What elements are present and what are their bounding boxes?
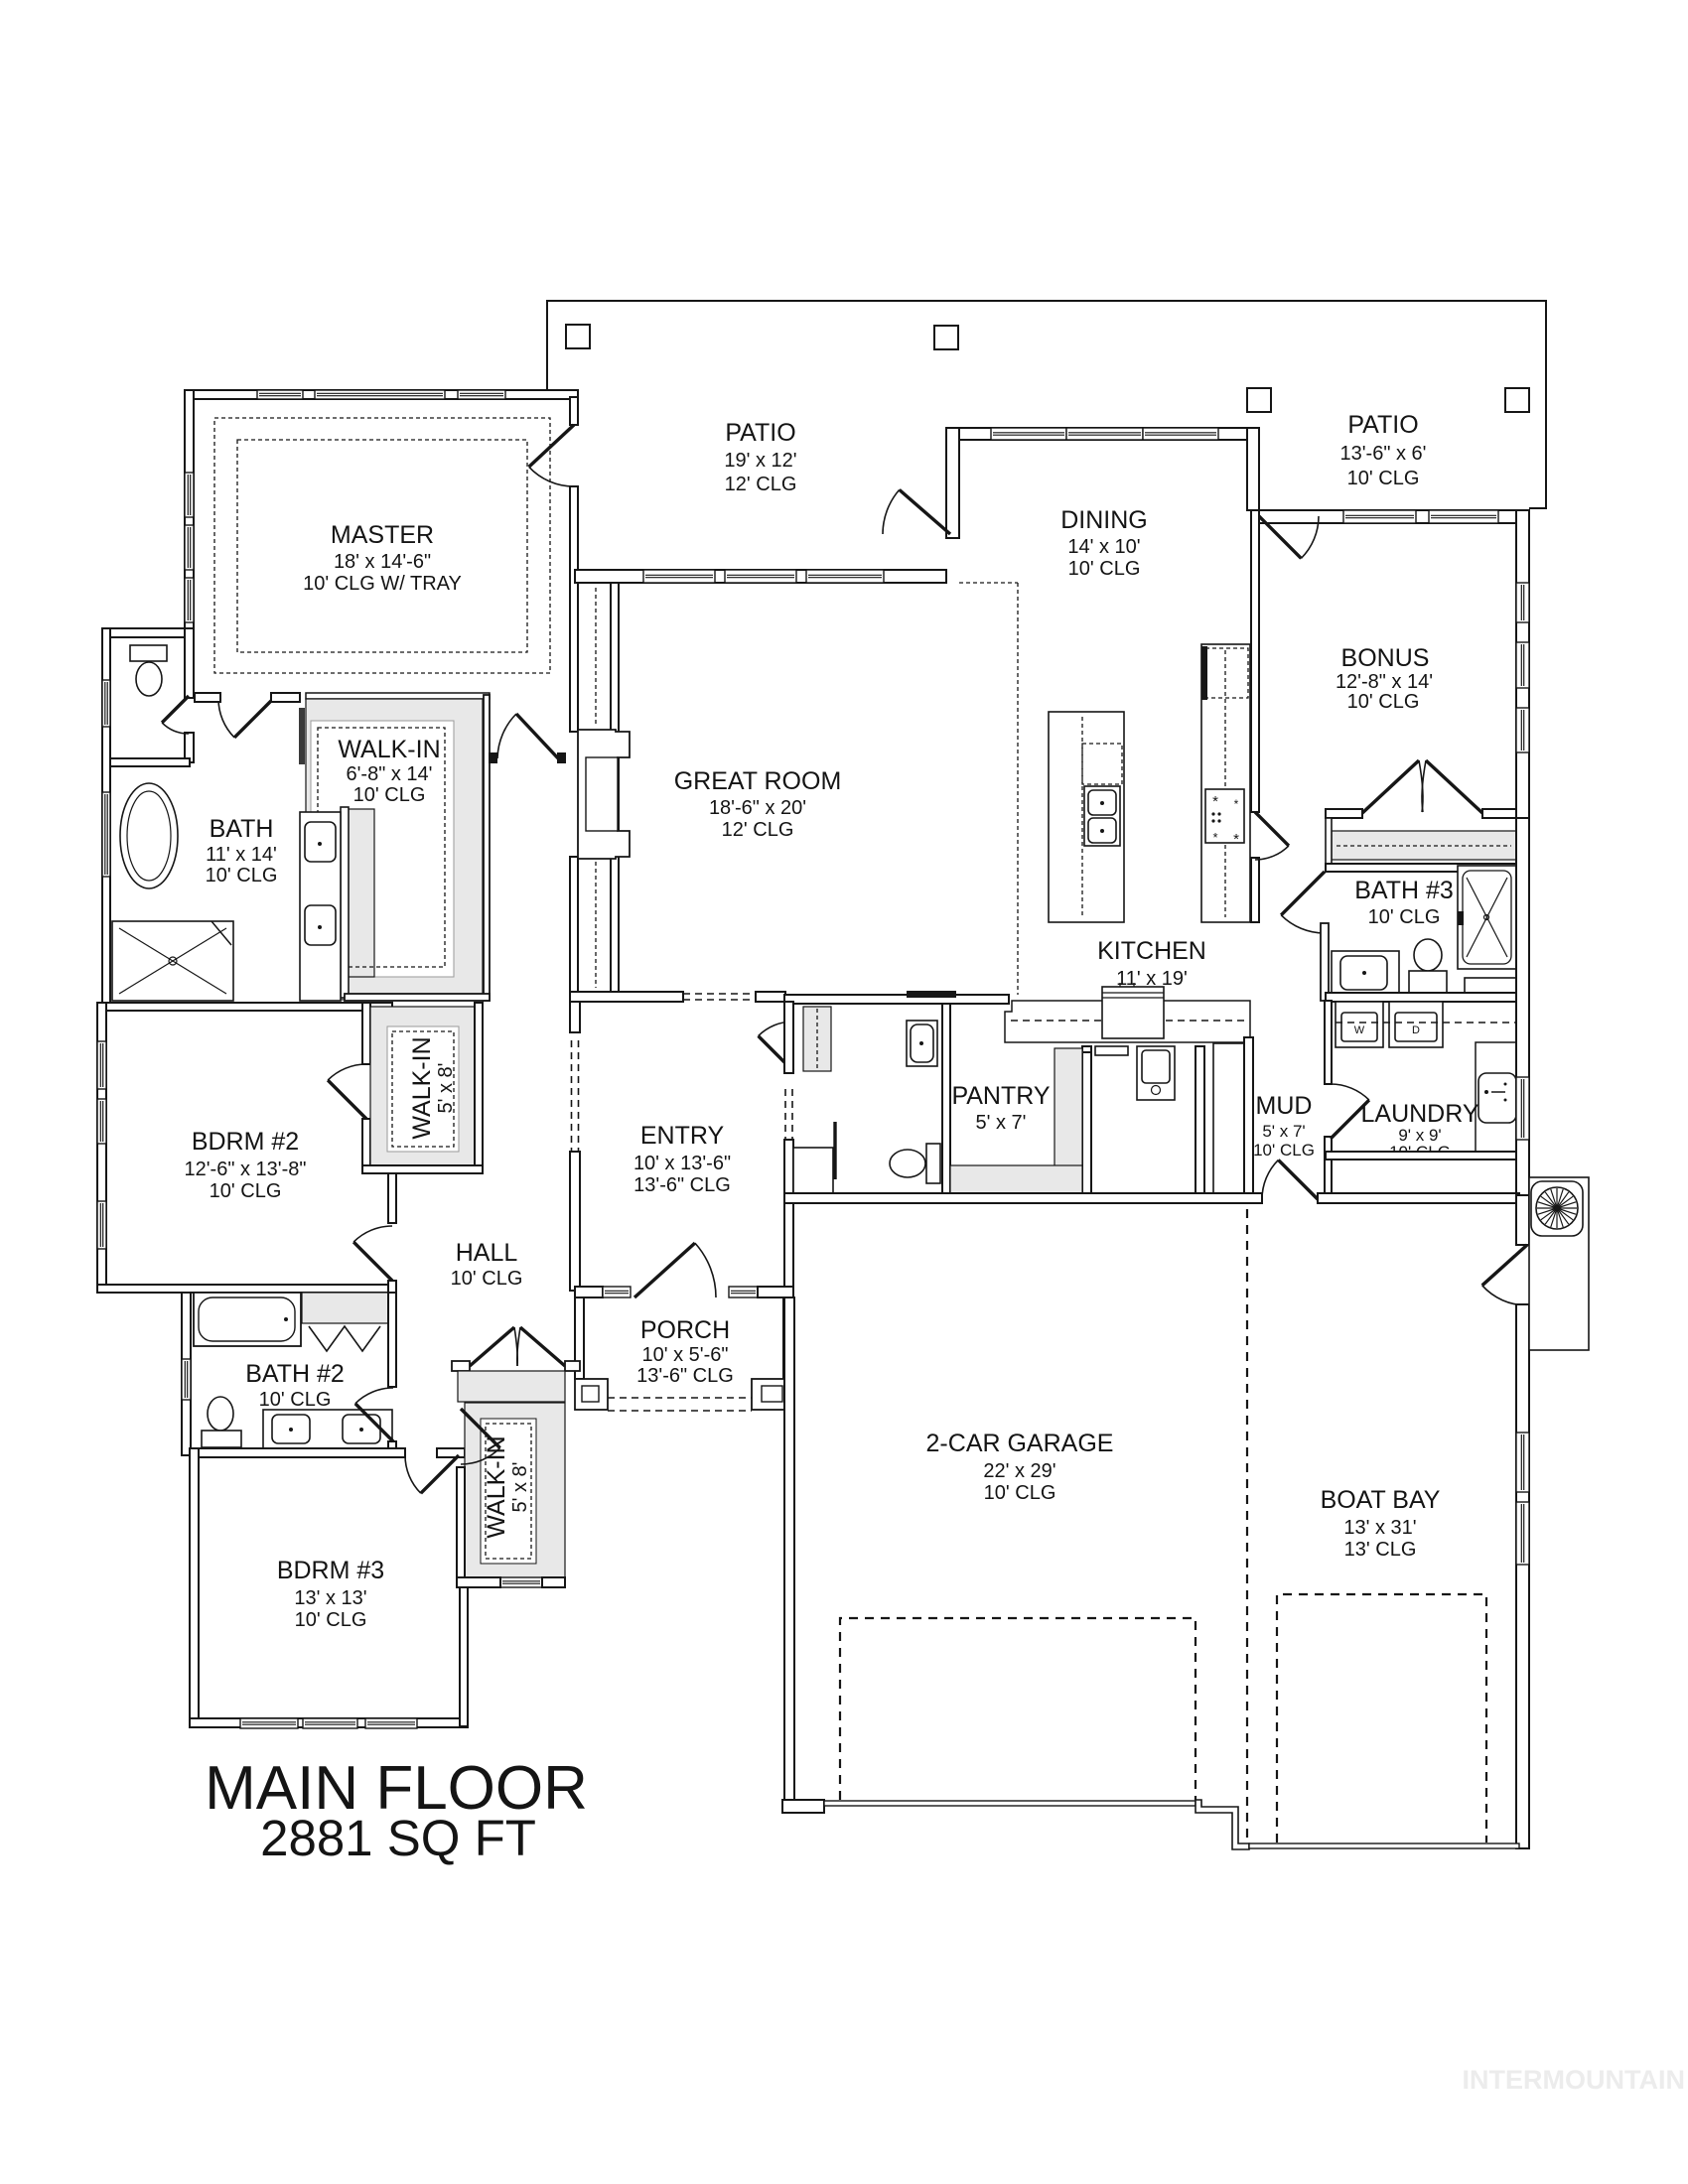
svg-text:BATH #2: BATH #2 <box>245 1360 345 1388</box>
svg-text:PANTRY: PANTRY <box>951 1082 1050 1110</box>
svg-text:*: * <box>1234 797 1239 811</box>
svg-text:22' x 29': 22' x 29' <box>983 1460 1055 1482</box>
svg-text:BDRM #3: BDRM #3 <box>277 1557 384 1584</box>
svg-text:10' CLG: 10' CLG <box>984 1482 1056 1504</box>
svg-text:W: W <box>1354 1024 1365 1036</box>
svg-text:14' x 10': 14' x 10' <box>1067 536 1140 558</box>
svg-text:6'-8" x 14': 6'-8" x 14' <box>346 763 432 785</box>
svg-text:BOAT BAY: BOAT BAY <box>1321 1486 1441 1514</box>
svg-text:BDRM #2: BDRM #2 <box>192 1128 299 1156</box>
svg-text:10' CLG: 10' CLG <box>1068 558 1141 580</box>
svg-text:10' CLG: 10' CLG <box>451 1268 523 1290</box>
svg-text:5' x 8': 5' x 8' <box>509 1462 531 1513</box>
svg-text:10' CLG: 10' CLG <box>353 784 426 806</box>
svg-text:18'-6" x 20': 18'-6" x 20' <box>709 797 806 819</box>
svg-text:KITCHEN: KITCHEN <box>1097 937 1206 965</box>
svg-text:13'-6" CLG: 13'-6" CLG <box>633 1174 731 1196</box>
svg-text:BATH #3: BATH #3 <box>1354 877 1454 904</box>
svg-text:19' x 12': 19' x 12' <box>724 450 796 472</box>
svg-text:5' x 7': 5' x 7' <box>1262 1122 1305 1141</box>
svg-text:10' CLG: 10' CLG <box>295 1609 367 1631</box>
svg-text:13' x 13': 13' x 13' <box>294 1587 366 1609</box>
svg-text:WALK-IN: WALK-IN <box>408 1036 436 1139</box>
svg-text:WALK-IN: WALK-IN <box>483 1435 510 1538</box>
svg-text:MASTER: MASTER <box>331 521 434 549</box>
svg-text:10' x 5'-6": 10' x 5'-6" <box>641 1344 728 1366</box>
svg-text:2-CAR GARAGE: 2-CAR GARAGE <box>926 1430 1114 1457</box>
svg-text:13'-6" x 6': 13'-6" x 6' <box>1339 443 1426 465</box>
svg-text:10' CLG: 10' CLG <box>206 865 278 887</box>
svg-text:10' CLG: 10' CLG <box>1347 468 1420 489</box>
svg-text:10' CLG: 10' CLG <box>1368 906 1441 928</box>
svg-text:12'-6" x 13'-8": 12'-6" x 13'-8" <box>184 1159 306 1180</box>
svg-text:PATIO: PATIO <box>1347 411 1418 439</box>
svg-text:HALL: HALL <box>456 1239 518 1267</box>
svg-text:11' x 14': 11' x 14' <box>206 844 277 866</box>
svg-text:MUD: MUD <box>1256 1092 1313 1120</box>
svg-text:2881 SQ FT: 2881 SQ FT <box>260 1810 536 1866</box>
svg-text:LAUNDRY: LAUNDRY <box>1360 1100 1478 1128</box>
svg-text:10' CLG: 10' CLG <box>210 1180 282 1202</box>
svg-text:WALK-IN: WALK-IN <box>338 736 440 763</box>
svg-text:10' CLG: 10' CLG <box>1347 691 1420 713</box>
svg-text:GREAT ROOM: GREAT ROOM <box>674 767 842 795</box>
svg-text:10' CLG W/ TRAY: 10' CLG W/ TRAY <box>303 573 462 595</box>
svg-text:12' CLG: 12' CLG <box>722 819 794 841</box>
svg-text:PORCH: PORCH <box>640 1316 730 1344</box>
svg-text:BATH: BATH <box>210 815 274 843</box>
svg-text:*: * <box>1233 831 1239 848</box>
svg-text:12' CLG: 12' CLG <box>725 474 797 495</box>
svg-text:10' x 13'-6": 10' x 13'-6" <box>633 1153 731 1174</box>
svg-text:INTERMOUNTAIN: INTERMOUNTAIN <box>1463 2065 1685 2095</box>
svg-text:13' CLG: 13' CLG <box>1344 1539 1417 1561</box>
svg-text:*: * <box>1212 830 1217 845</box>
svg-text:10' CLG: 10' CLG <box>259 1389 332 1411</box>
svg-text:D: D <box>1412 1024 1420 1036</box>
svg-text:18' x 14'-6": 18' x 14'-6" <box>334 551 431 573</box>
svg-text:DINING: DINING <box>1060 506 1148 534</box>
svg-text:12'-8" x 14': 12'-8" x 14' <box>1336 671 1433 693</box>
svg-text:10' CLG: 10' CLG <box>1253 1141 1315 1160</box>
svg-text:PATIO: PATIO <box>725 419 795 447</box>
svg-text:5' x 8': 5' x 8' <box>435 1063 457 1114</box>
svg-text:13'-6" CLG: 13'-6" CLG <box>636 1365 734 1387</box>
svg-text:BONUS: BONUS <box>1341 644 1430 672</box>
svg-text:13' x 31': 13' x 31' <box>1343 1517 1416 1539</box>
svg-text:*: * <box>1212 793 1218 810</box>
svg-text:5' x 7': 5' x 7' <box>976 1112 1027 1134</box>
svg-text:ENTRY: ENTRY <box>640 1122 725 1150</box>
